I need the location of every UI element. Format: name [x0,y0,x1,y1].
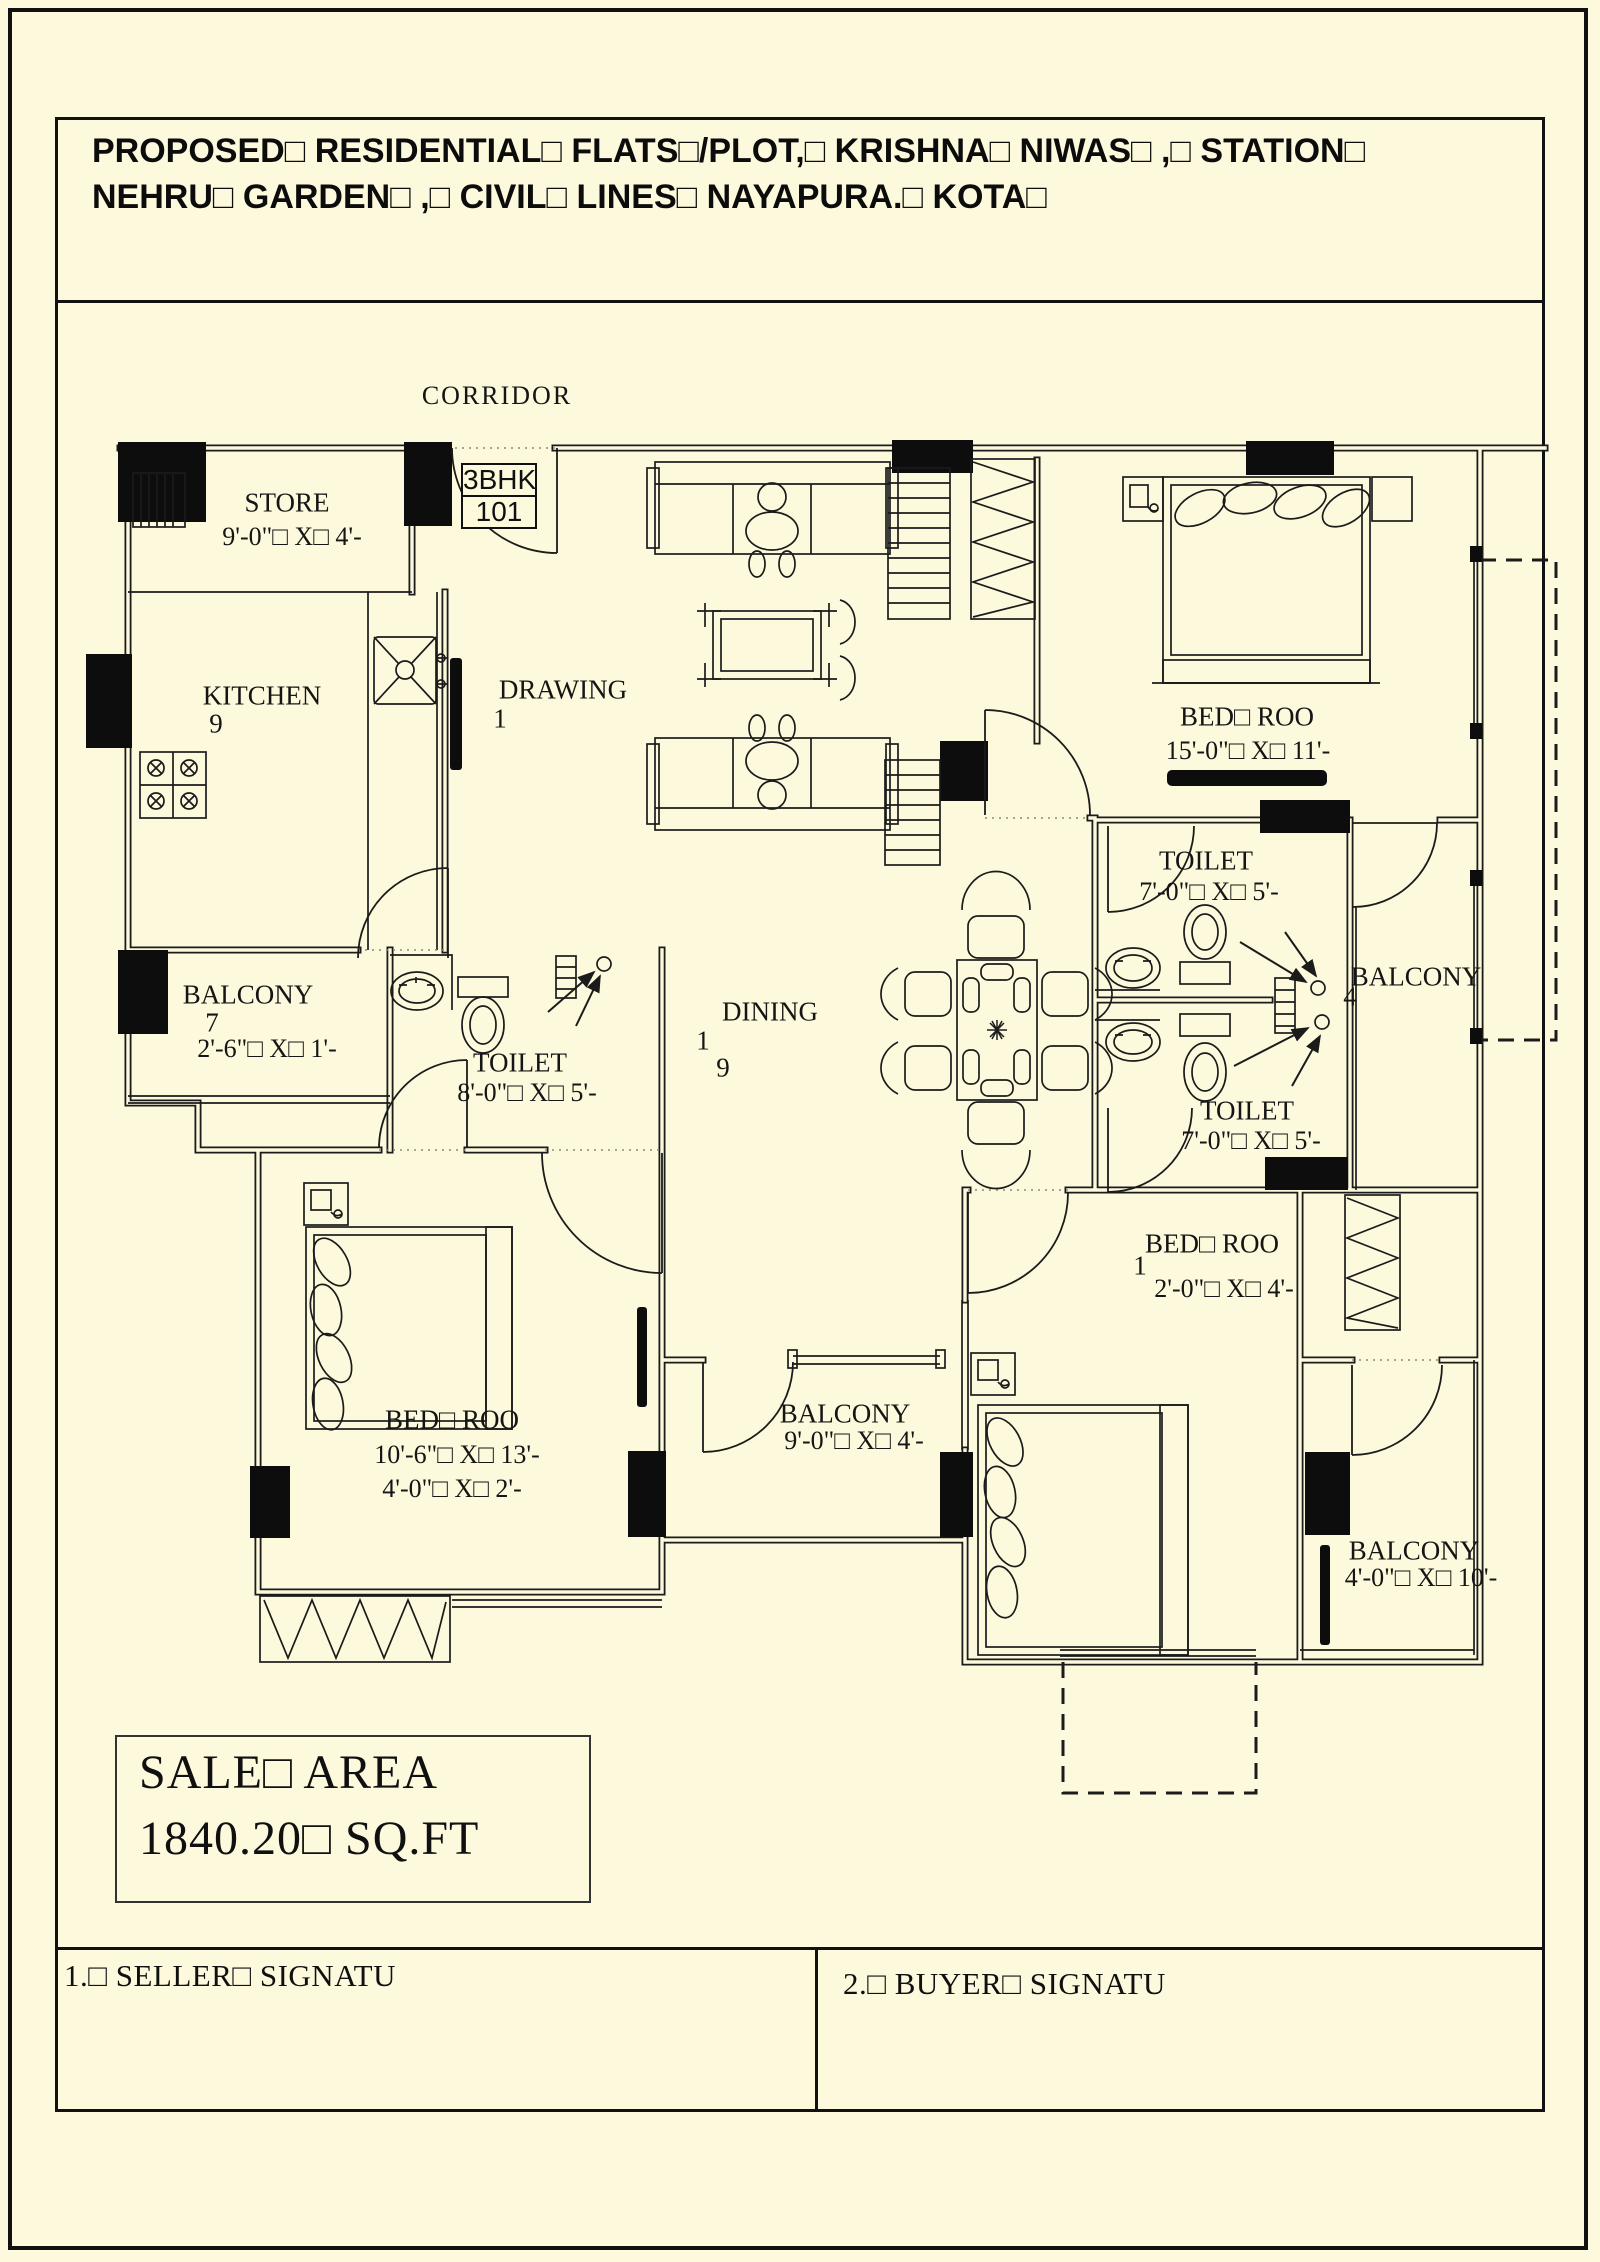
label-bedroom3-name: BED□ ROO [1145,1229,1279,1260]
bedroom3-furniture [971,1353,1188,1655]
label-balcony3-dims: 9'-0"□ X□ 4'- [784,1426,923,1456]
label-kitchen-stray: 9 [209,709,223,740]
label-dining-stray2: 9 [716,1053,730,1084]
kitchen-fixtures [140,637,448,818]
label-dining-stray1: 1 [696,1026,710,1057]
floor-plan-page: PROPOSED□ RESIDENTIAL□ FLATS□/PLOT,□ KRI… [0,0,1600,2262]
label-kitchen-name: KITCHEN [203,681,321,712]
unit-number: 101 [463,497,535,527]
label-bedroom1-dims: 15'-0"□ X□ 11'- [1166,736,1331,766]
label-toilet2-dims: 7'-0"□ X□ 5'- [1181,1126,1320,1156]
label-dining-name: DINING [722,997,818,1028]
buyer-signature-label: 2.□ BUYER□ SIGNATU [843,1966,1166,2002]
label-balcony1-name: BALCONY [1351,962,1482,993]
seller-signature-label: 1.□ SELLER□ SIGNATU [64,1958,396,1994]
label-bedroom2-dims1: 10'-6"□ X□ 13'- [374,1440,539,1470]
label-balcony4-dims: 4'-0"□ X□ 10'- [1345,1563,1497,1593]
label-toilet1-dims: 7'-0"□ X□ 5'- [1139,877,1278,907]
label-store-dims: 9'-0"□ X□ 4'- [222,522,361,552]
label-store-name: STORE [244,488,329,519]
drawing-room-furniture [647,462,898,830]
sale-area-title: SALE□ AREA [139,1745,438,1800]
sale-area-value: 1840.20□ SQ.FT [139,1811,479,1866]
threshold-dotted-lines [358,448,1442,1360]
dining-set [881,871,1112,1188]
label-bedroom3-dims: 2'-0"□ X□ 4'- [1154,1274,1293,1304]
bedroom2-furniture [304,1183,512,1432]
label-corridor: CORRIDOR [422,381,572,411]
label-bedroom2-name: BED□ ROO [385,1405,519,1436]
label-balcony3-name: BALCONY [780,1399,911,1430]
label-drawing-name: DRAWING [499,675,627,706]
label-toilet3-name: TOILET [473,1048,567,1079]
label-balcony1-stray: 4 [1343,982,1357,1013]
label-balcony4-name: BALCONY [1349,1536,1480,1567]
unit-badge: 3BHK 101 [461,463,537,529]
master-bedroom-furniture [1123,477,1412,683]
unit-type: 3BHK [463,465,535,497]
label-drawing-stray: 1 [493,704,507,735]
sale-area-box: SALE□ AREA 1840.20□ SQ.FT [115,1735,591,1903]
label-balcony2-dims: 2'-6"□ X□ 1'- [197,1034,336,1064]
label-bedroom1-name: BED□ ROO [1180,702,1314,733]
label-toilet3-dims: 8'-0"□ X□ 5'- [457,1078,596,1108]
label-balcony2-name: BALCONY [183,980,314,1011]
label-bedroom2-dims2: 4'-0"□ X□ 2'- [382,1474,521,1504]
label-toilet1-name: TOILET [1159,846,1253,877]
floor-plan-drawing [0,0,1600,2262]
label-toilet2-name: TOILET [1200,1096,1294,1127]
label-bedroom3-stray: 1 [1133,1251,1147,1282]
